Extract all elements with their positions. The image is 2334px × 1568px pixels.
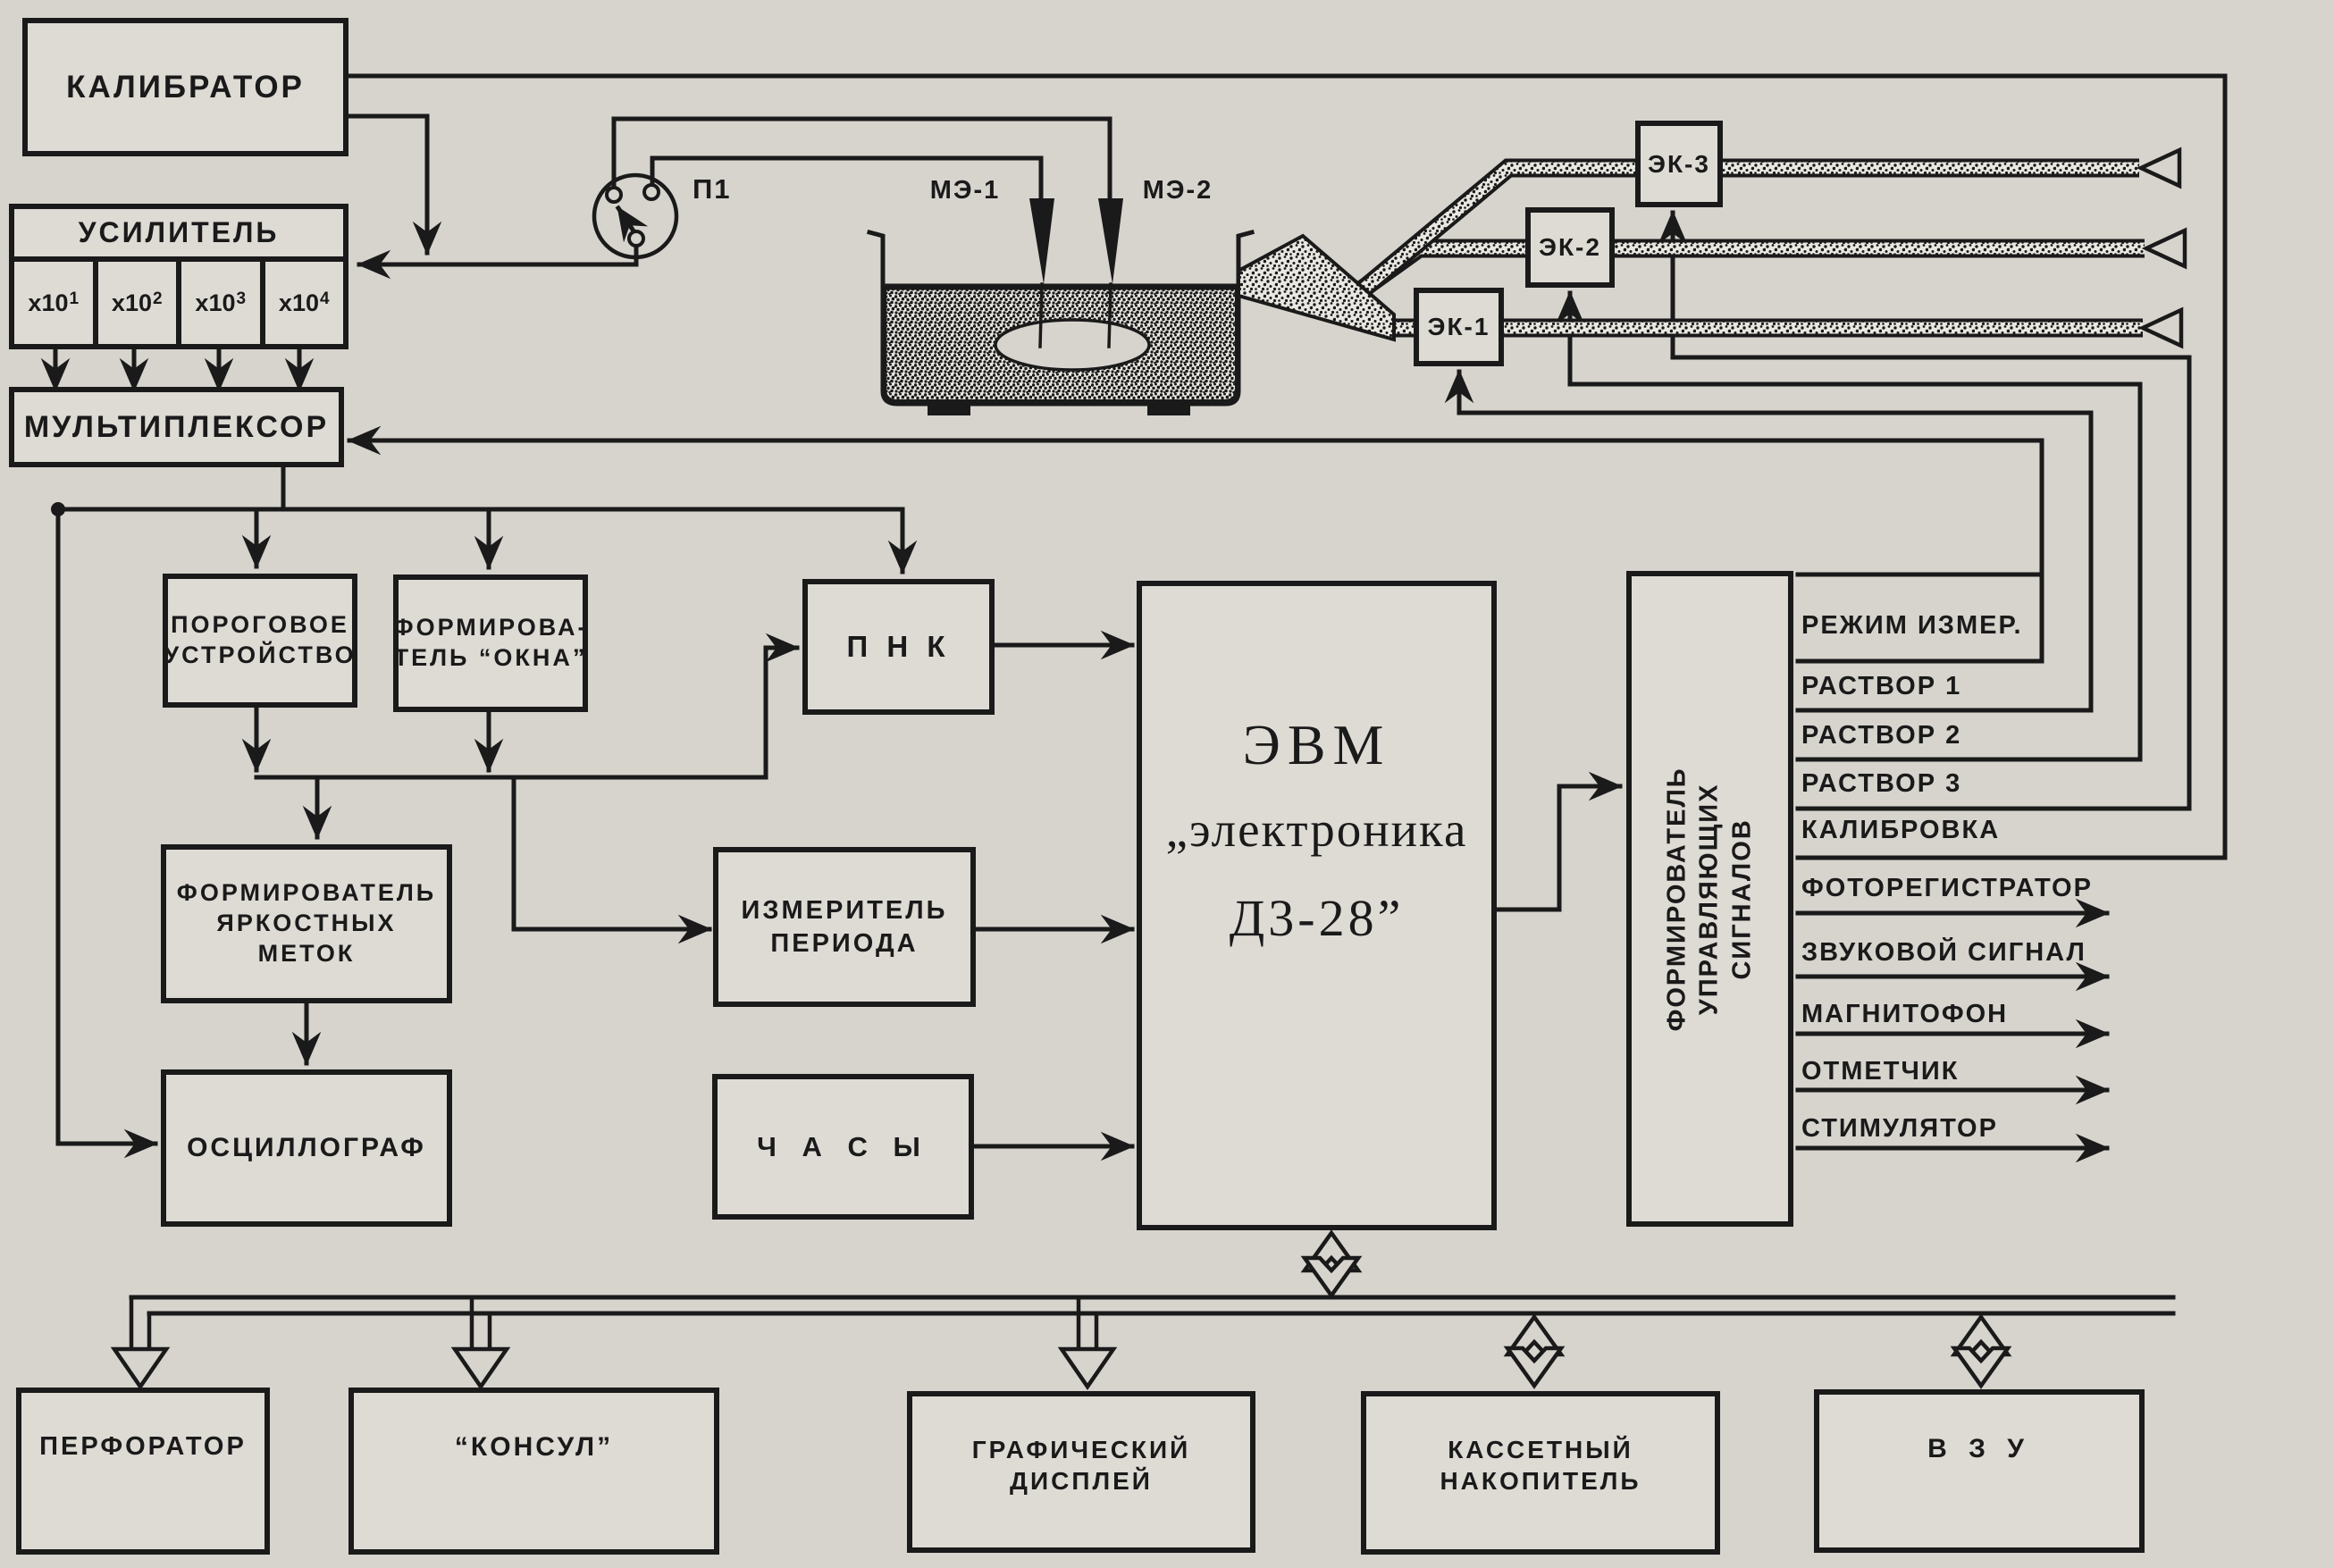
bus-bidirectional-icon (1507, 1317, 1561, 1386)
cassette-storage-block: КАССЕТНЫЙ НАКОПИТЕЛЬ (1361, 1391, 1720, 1555)
amplifier-gain-cells: x101 x102 x103 x104 (14, 262, 343, 344)
specimen-oval (995, 320, 1149, 370)
bus-down-arrow-icon (1062, 1349, 1113, 1387)
window-former-block: ФОРМИРОВА- ТЕЛЬ “ОКНА” (393, 574, 588, 712)
clock-label: Ч А С Ы (757, 1131, 929, 1163)
data-bus (114, 1233, 2173, 1387)
p1-switch-icon (594, 175, 676, 257)
switch-p1-label: П1 (693, 173, 732, 205)
graphic-display-block: ГРАФИЧЕСКИЙ ДИСПЛЕЙ (907, 1391, 1255, 1553)
amplifier-gain-x10-3: x103 (176, 262, 260, 344)
experimental-bath (869, 198, 1394, 415)
output-solution2-label: РАСТВОР 2 (1801, 721, 1961, 750)
microelectrode-1-icon (1029, 198, 1054, 284)
output-calibration-label: КАЛИБРОВКА (1801, 816, 2000, 845)
amplifier-title: УСИЛИТЕЛЬ (14, 209, 343, 262)
amplifier-gain-x10-4: x104 (260, 262, 344, 344)
output-photorecorder-label: ФОТОРЕГИСТРАТОР (1801, 874, 2093, 903)
multiplexer-block: МУЛЬТИПЛЕКСОР (9, 387, 344, 467)
computer-block: ЭВМ „электроника Д3-28” (1137, 581, 1497, 1230)
solution-inlet-icon (2141, 150, 2179, 186)
solution-inlet-icon (2146, 231, 2185, 266)
control-signal-former-block: ФОРМИРОВАТЕЛЬ УПРАВЛЯЮЩИХ СИГНАЛОВ (1626, 571, 1793, 1227)
bus-bidirectional-icon (1305, 1233, 1358, 1295)
computer-label-model-1: „электроника (1166, 801, 1468, 858)
window-former-label: ФОРМИРОВА- ТЕЛЬ “ОКНА” (393, 613, 589, 674)
valve-ek2-block: ЭК-2 (1525, 207, 1615, 288)
pnk-label: П Н К (846, 630, 950, 664)
microelectrode-2-icon (1098, 198, 1123, 284)
output-solution1-label: РАСТВОР 1 (1801, 672, 1961, 701)
bus-down-arrow-icon (455, 1349, 507, 1387)
vzu-block: В З У (1814, 1389, 2145, 1553)
output-marker-label: ОТМЕТЧИК (1801, 1057, 1959, 1086)
amplifier-block: УСИЛИТЕЛЬ x101 x102 x103 x104 (9, 204, 348, 349)
scanned-block-diagram: КАЛИБРАТОР УСИЛИТЕЛЬ x101 x102 x103 x104… (0, 0, 2334, 1568)
brightness-mark-former-block: ФОРМИРОВАТЕЛЬ ЯРКОСТНЫХ МЕТОК (161, 844, 452, 1003)
valve-ek1-block: ЭК-1 (1414, 288, 1504, 366)
output-mode-label: РЕЖИМ ИЗМЕР. (1801, 611, 2023, 641)
konsul-block: “КОНСУЛ” (348, 1388, 719, 1555)
output-taperecorder-label: МАГНИТОФОН (1801, 1000, 2008, 1029)
computer-label-evm: ЭВМ (1243, 712, 1391, 778)
oscilloscope-block: ОСЦИЛЛОГРАФ (161, 1069, 452, 1227)
bus-bidirectional-icon (1954, 1317, 2008, 1386)
amplifier-gain-x10-2: x102 (93, 262, 177, 344)
multiplexer-label: МУЛЬТИПЛЕКСОР (24, 410, 329, 445)
multiplexer-output-lines (51, 469, 903, 1144)
threshold-device-label: ПОРОГОВОЕ УСТРОЙСТВО (164, 610, 356, 671)
amplifier-multiplexer-arrows (55, 350, 299, 390)
threshold-device-block: ПОРОГОВОЕ УСТРОЙСТВО (163, 574, 357, 708)
solution-inlet-icon (2143, 310, 2181, 346)
electrode-2-label: МЭ-2 (1124, 176, 1231, 205)
computer-label-model-2: Д3-28” (1230, 888, 1405, 948)
control-signal-former-label: ФОРМИРОВАТЕЛЬ УПРАВЛЯЮЩИХ СИГНАЛОВ (1661, 767, 1759, 1031)
amplifier-gain-x10-1: x101 (14, 262, 93, 344)
pnk-block: П Н К (802, 579, 995, 715)
electrode-1-label: МЭ-1 (911, 176, 1019, 205)
period-meter-block: ИЗМЕРИТЕЛЬ ПЕРИОДА (713, 847, 976, 1007)
clock-block: Ч А С Ы (712, 1074, 974, 1220)
output-sound-label: ЗВУКОВОЙ СИГНАЛ (1801, 938, 2086, 968)
output-solution3-label: РАСТВОР 3 (1801, 769, 1961, 799)
output-stimulator-label: СТИМУЛЯТОР (1801, 1114, 1998, 1144)
brightness-mark-former-label: ФОРМИРОВАТЕЛЬ ЯРКОСТНЫХ МЕТОК (177, 878, 436, 968)
valve-ek3-block: ЭК-3 (1635, 121, 1723, 207)
calibrator-block: КАЛИБРАТОР (22, 18, 348, 156)
calibrator-label: КАЛИБРАТОР (66, 70, 305, 105)
oscilloscope-label: ОСЦИЛЛОГРАФ (187, 1133, 426, 1163)
period-meter-label: ИЗМЕРИТЕЛЬ ПЕРИОДА (742, 894, 948, 960)
perforator-block: ПЕРФОРАТОР (16, 1388, 270, 1555)
bus-down-arrow-icon (114, 1349, 166, 1387)
